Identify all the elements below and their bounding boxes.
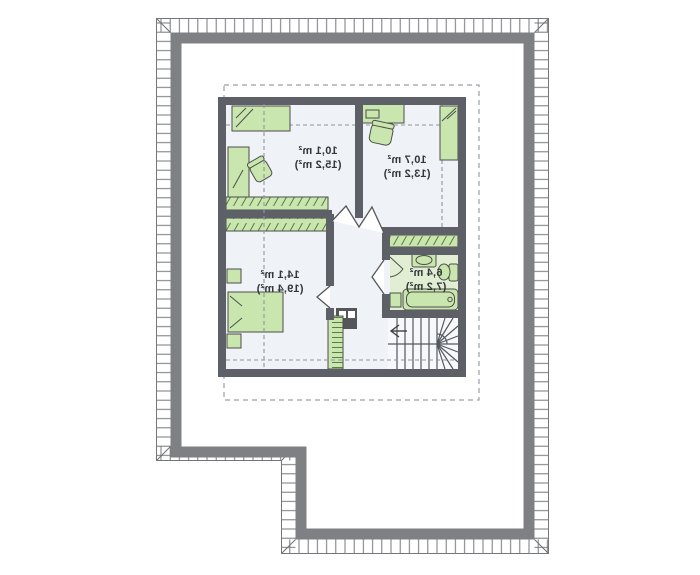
room-area-label-bathroom: 6,4 m² (7,2 m²) (384, 266, 468, 294)
room-area: 6,4 m² (384, 266, 468, 280)
wardrobe-icon (226, 218, 328, 231)
sink-icon (412, 253, 436, 267)
room-area-gross: (7,2 m²) (384, 280, 468, 294)
bidet-icon (390, 293, 401, 307)
double-bed-icon (228, 292, 283, 332)
room-area: 14,1 m² (238, 268, 322, 282)
attic-floor-plan: 10,1 m² (15,2 m²) 10,7 m² (13,2 m²) 14,1… (0, 0, 700, 575)
wardrobe-icon (388, 235, 458, 247)
room-area-gross: (13,2 m²) (365, 167, 449, 181)
room-area-gross: (19,4 m²) (238, 282, 322, 296)
room-area-label-bedroom-top-right: 10,7 m² (13,2 m²) (365, 153, 449, 181)
room-area-gross: (15,2 m²) (276, 158, 360, 172)
desk-icon (228, 147, 249, 197)
floor-plan-drawing (0, 0, 700, 575)
room-area: 10,7 m² (365, 153, 449, 167)
room-area-label-bedroom-top-left: 10,1 m² (15,2 m²) (276, 144, 360, 172)
chair-icon (368, 120, 394, 146)
wardrobe-icon (226, 197, 328, 210)
loft-ladder-icon (328, 316, 343, 369)
nightstand-icon (227, 334, 241, 348)
bed-icon (232, 106, 290, 131)
bed-icon (440, 106, 458, 160)
room-area: 10,1 m² (276, 144, 360, 158)
room-area-label-bedroom-bottom-left: 14,1 m² (19,4 m²) (238, 268, 322, 296)
